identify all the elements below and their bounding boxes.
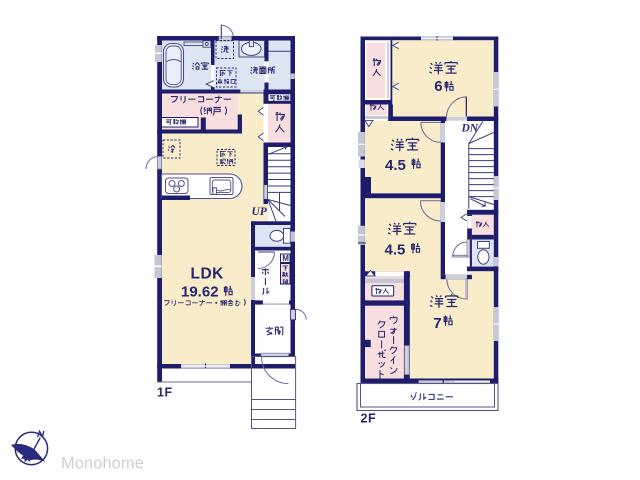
svg-text:DN: DN bbox=[461, 123, 479, 135]
svg-text:M: M bbox=[282, 254, 289, 263]
svg-text:1F: 1F bbox=[157, 386, 173, 400]
svg-text:4.5: 4.5 bbox=[385, 242, 406, 259]
svg-text:LDK: LDK bbox=[191, 266, 225, 283]
svg-text:2F: 2F bbox=[361, 411, 377, 425]
svg-text:UP: UP bbox=[252, 206, 268, 218]
svg-text:Monohome: Monohome bbox=[61, 454, 144, 472]
svg-text:19.62: 19.62 bbox=[181, 284, 219, 301]
svg-text:4.5: 4.5 bbox=[385, 157, 406, 174]
svg-text:6: 6 bbox=[434, 78, 442, 95]
svg-text:7: 7 bbox=[433, 315, 441, 332]
